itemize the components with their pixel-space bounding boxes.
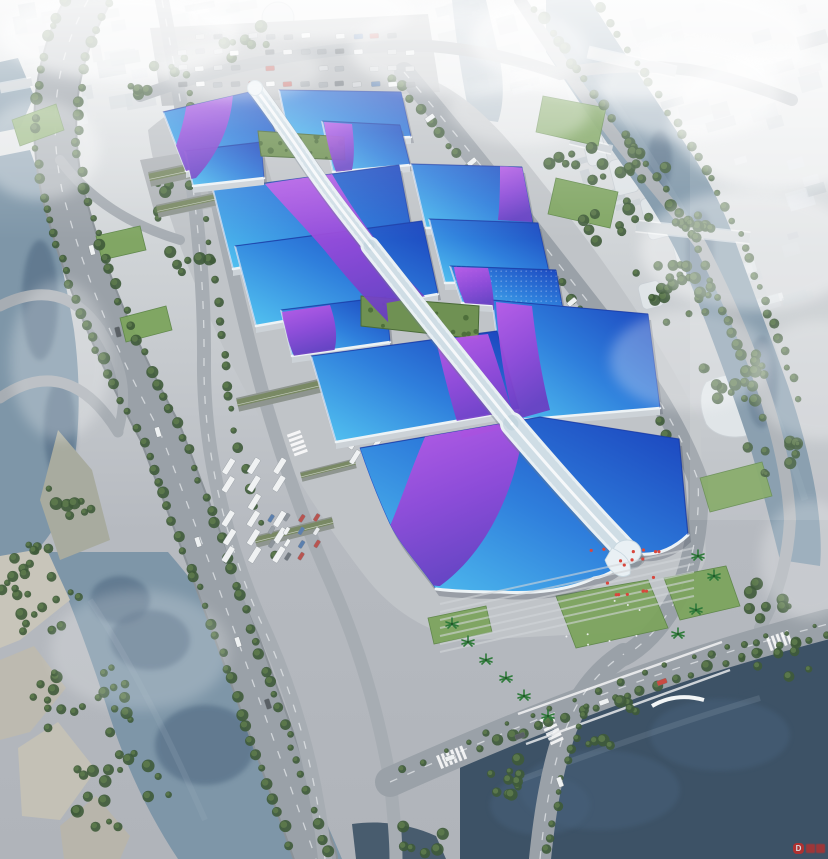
red-flag	[606, 581, 609, 584]
red-flag	[632, 550, 635, 553]
pedestrian	[627, 604, 629, 606]
watermark-glyph	[806, 844, 815, 853]
red-flag	[641, 590, 644, 593]
fog-patch	[610, 310, 770, 410]
watermark-glyphs	[806, 844, 825, 853]
fog-patch	[600, 40, 780, 140]
pedestrian	[587, 644, 589, 646]
pedestrian	[609, 640, 611, 642]
red-flag	[657, 550, 660, 553]
red-flag	[623, 563, 626, 566]
pedestrian	[614, 600, 616, 602]
red-flag	[626, 593, 629, 596]
red-flag	[630, 558, 633, 561]
red-flag	[590, 549, 593, 552]
red-flag	[652, 576, 655, 579]
red-flag	[645, 590, 648, 593]
aerial-rendering-stage: D	[0, 0, 828, 859]
stock-watermark: D	[793, 843, 825, 854]
fog-patch	[10, 280, 110, 440]
red-flag	[654, 550, 657, 553]
red-flag	[602, 548, 605, 551]
pedestrian	[587, 633, 589, 635]
pedestrian	[639, 609, 641, 611]
red-flag	[615, 593, 618, 596]
watermark-glyph	[816, 844, 825, 853]
fog-patch	[450, 75, 590, 145]
fog-patch	[50, 590, 230, 710]
exhibition-center-aerial-rendering	[0, 0, 828, 859]
pedestrian	[635, 635, 637, 637]
red-flag	[641, 557, 644, 560]
fog-patch	[160, 40, 320, 100]
red-flag	[619, 559, 622, 562]
watermark-logo-icon: D	[793, 843, 804, 854]
pedestrian	[565, 635, 567, 637]
red-flag	[642, 548, 645, 551]
